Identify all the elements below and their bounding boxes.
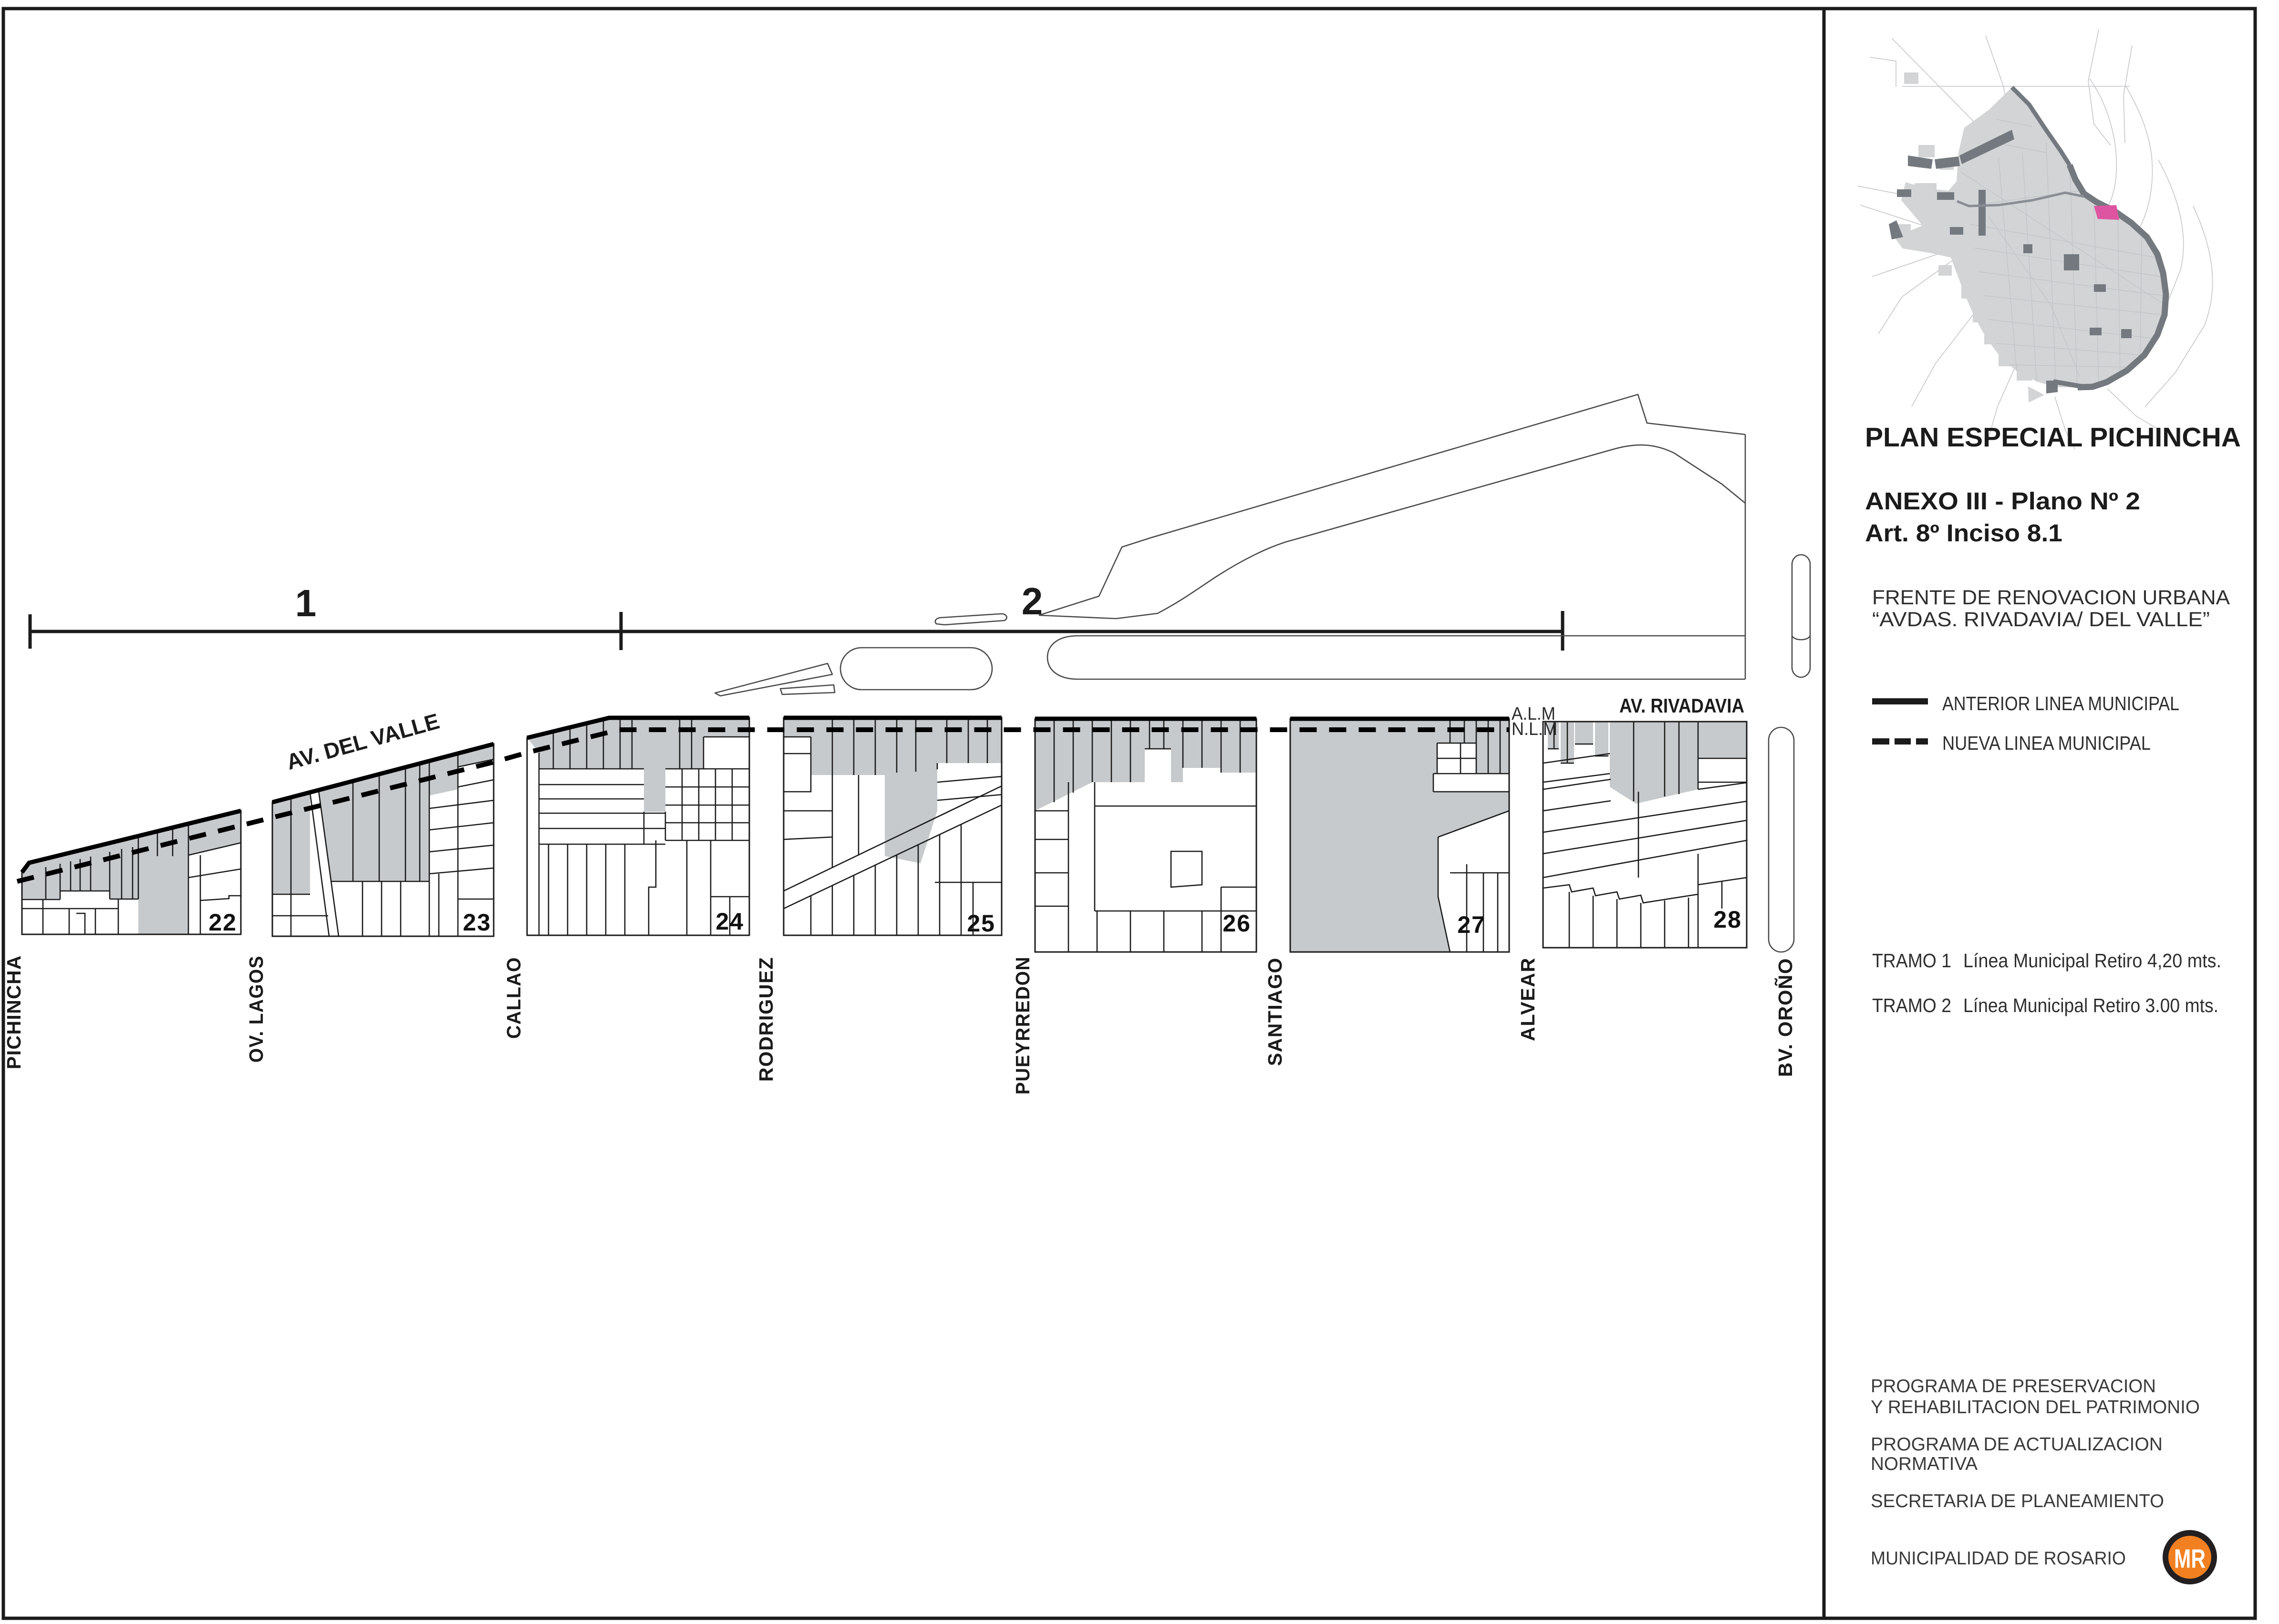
svg-text:BV. OROÑO: BV. OROÑO	[1774, 958, 1796, 1077]
svg-text:FRENTE DE RENOVACION URBANA: FRENTE DE RENOVACION URBANA	[1872, 586, 2230, 609]
svg-text:22: 22	[208, 909, 237, 936]
svg-text:PLAN ESPECIAL PICHINCHA: PLAN ESPECIAL PICHINCHA	[1865, 422, 2241, 453]
svg-text:RODRIGUEZ: RODRIGUEZ	[755, 957, 777, 1082]
svg-text:PUEYRREDON: PUEYRREDON	[1012, 956, 1034, 1095]
svg-text:AV. RIVADAVIA: AV. RIVADAVIA	[1619, 694, 1744, 717]
svg-text:TRAMO 1: TRAMO 1	[1872, 950, 1951, 972]
svg-text:N.L.M: N.L.M	[1512, 719, 1557, 739]
svg-text:26: 26	[1222, 910, 1251, 937]
svg-text:ALVEAR: ALVEAR	[1517, 957, 1539, 1041]
svg-text:24: 24	[715, 908, 744, 935]
svg-text:28: 28	[1713, 906, 1742, 933]
svg-text:23: 23	[463, 909, 491, 936]
svg-text:2: 2	[1022, 580, 1043, 622]
svg-text:OV. LAGOS: OV. LAGOS	[245, 955, 267, 1063]
svg-text:27: 27	[1457, 911, 1486, 938]
svg-text:Art. 8º Inciso 8.1: Art. 8º Inciso 8.1	[1865, 519, 2062, 547]
svg-text:Línea Municipal Retiro 4,20 mt: Línea Municipal Retiro 4,20 mts.	[1963, 950, 2221, 972]
svg-text:MUNICIPALIDAD DE ROSARIO: MUNICIPALIDAD DE ROSARIO	[1871, 1548, 2126, 1569]
svg-text:MR: MR	[2174, 1543, 2206, 1573]
svg-text:PICHINCHA: PICHINCHA	[3, 955, 25, 1069]
svg-text:“AVDAS. RIVADAVIA/ DEL VALLE”: “AVDAS. RIVADAVIA/ DEL VALLE”	[1872, 608, 2210, 631]
svg-text:CALLAO: CALLAO	[503, 957, 525, 1039]
svg-text:PROGRAMA DE ACTUALIZACION: PROGRAMA DE ACTUALIZACION	[1871, 1434, 2163, 1455]
svg-text:ANTERIOR LINEA MUNICIPAL: ANTERIOR LINEA MUNICIPAL	[1942, 693, 2179, 714]
svg-text:NUEVA LINEA MUNICIPAL: NUEVA LINEA MUNICIPAL	[1942, 732, 2151, 754]
svg-text:Línea Municipal Retiro 3.00 mt: Línea Municipal Retiro 3.00 mts.	[1963, 994, 2218, 1016]
svg-text:ANEXO III - Plano Nº 2: ANEXO III - Plano Nº 2	[1865, 487, 2140, 515]
svg-text:NORMATIVA: NORMATIVA	[1871, 1454, 1978, 1474]
svg-text:25: 25	[967, 910, 995, 937]
svg-text:1: 1	[295, 582, 317, 624]
svg-text:TRAMO 2: TRAMO 2	[1872, 994, 1951, 1016]
svg-text:PROGRAMA DE PRESERVACION: PROGRAMA DE PRESERVACION	[1871, 1376, 2156, 1396]
svg-text:SANTIAGO: SANTIAGO	[1264, 957, 1286, 1066]
svg-text:Y REHABILITACION DEL PATRIMONI: Y REHABILITACION DEL PATRIMONIO	[1871, 1397, 2200, 1417]
svg-text:SECRETARIA DE PLANEAMIENTO: SECRETARIA DE PLANEAMIENTO	[1871, 1491, 2164, 1511]
